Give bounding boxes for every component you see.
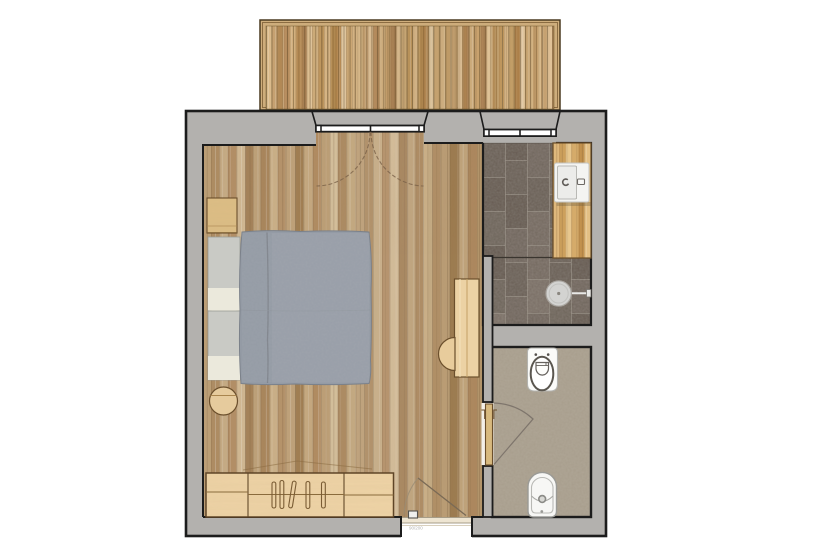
- svg-text:90/200: 90/200: [409, 526, 423, 531]
